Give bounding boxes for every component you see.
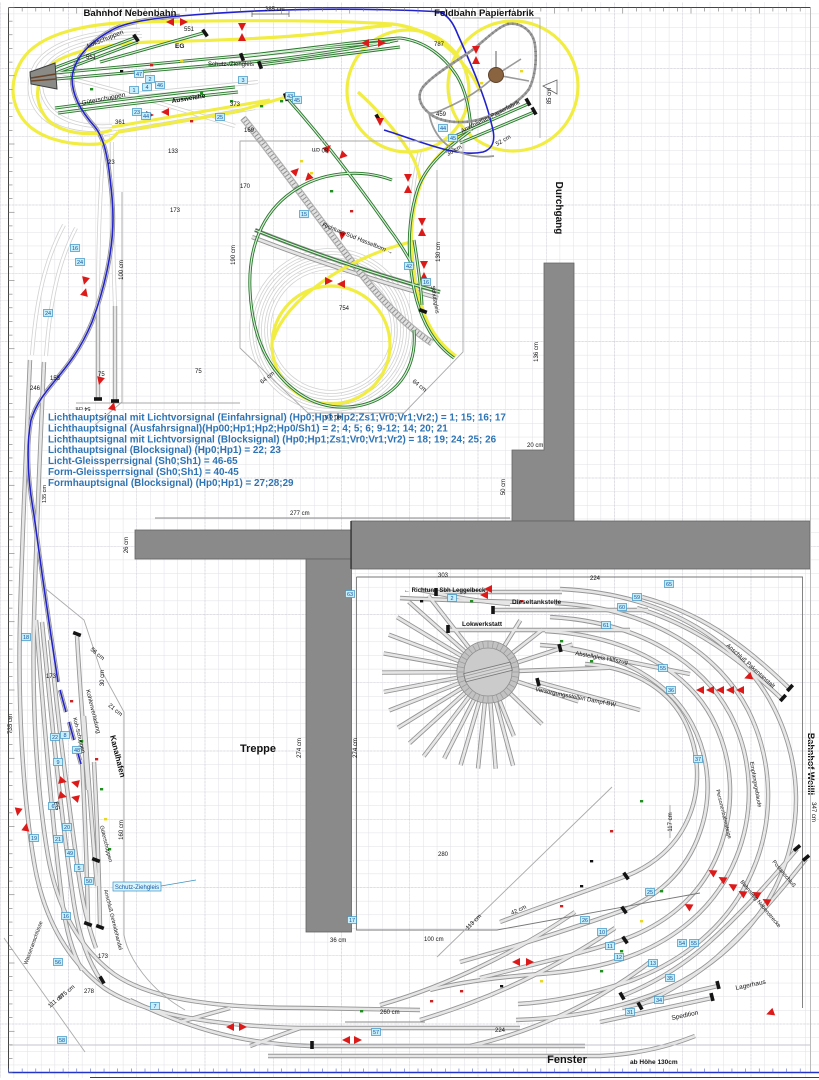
svg-text:10: 10: [599, 930, 605, 936]
svg-text:45: 45: [294, 98, 300, 104]
svg-text:42: 42: [406, 264, 412, 270]
svg-text:21: 21: [55, 837, 61, 843]
svg-text:23: 23: [134, 110, 140, 116]
svg-text:12: 12: [616, 955, 622, 961]
svg-text:Bahnhof Nebenbahn: Bahnhof Nebenbahn: [84, 8, 177, 19]
svg-text:85 cm: 85 cm: [547, 88, 553, 104]
svg-text:36 cm: 36 cm: [330, 938, 346, 944]
svg-text:75: 75: [195, 369, 202, 375]
svg-text:Lichthauptsignal (Blocksignal): Lichthauptsignal (Blocksignal) (Hp0;Hp1)…: [48, 445, 281, 456]
svg-text:280: 280: [438, 852, 449, 858]
svg-text:373: 373: [230, 102, 241, 108]
svg-text:Lichthauptsignal (Ausfahrsigna: Lichthauptsignal (Ausfahrsignal)(Hp00;Hp…: [48, 423, 448, 434]
svg-text:Dieseltankstelle: Dieseltankstelle: [512, 599, 562, 606]
svg-text:Lichthauptsignal mit Lichtvors: Lichthauptsignal mit Lichtvorsignal (Blo…: [48, 434, 497, 445]
svg-text:190 cm: 190 cm: [231, 245, 237, 265]
svg-text:Schutz-/Ziehgleis: Schutz-/Ziehgleis: [208, 62, 254, 68]
svg-text:← Richtung Sbh Leggelbeck: ← Richtung Sbh Leggelbeck: [404, 588, 486, 594]
svg-text:22: 22: [52, 735, 58, 741]
svg-text:23: 23: [108, 160, 115, 166]
svg-text:173: 173: [170, 208, 181, 214]
svg-text:754: 754: [339, 306, 350, 312]
svg-text:50 cm: 50 cm: [501, 479, 507, 495]
svg-text:19: 19: [31, 836, 37, 842]
svg-text:Licht-Gleissperrsignal (Sh0;Sh: Licht-Gleissperrsignal (Sh0;Sh1) = 46-65: [48, 456, 238, 467]
svg-text:55: 55: [660, 666, 666, 672]
svg-text:246: 246: [30, 386, 41, 392]
svg-text:50: 50: [86, 879, 92, 885]
svg-text:54: 54: [679, 941, 685, 947]
svg-text:Treppe: Treppe: [240, 743, 276, 755]
svg-text:44: 44: [440, 126, 446, 132]
svg-text:170: 170: [240, 184, 251, 190]
svg-text:20 cm: 20 cm: [527, 443, 543, 449]
svg-text:75: 75: [98, 372, 105, 378]
svg-text:26 cm: 26 cm: [124, 537, 130, 553]
svg-text:459: 459: [436, 112, 447, 118]
svg-text:16: 16: [423, 280, 429, 286]
svg-text:30 cm: 30 cm: [100, 670, 106, 686]
svg-text:24: 24: [77, 260, 83, 266]
svg-text:7: 7: [153, 1004, 156, 1010]
svg-text:100 cm: 100 cm: [119, 260, 125, 280]
svg-text:57: 57: [373, 1030, 379, 1036]
svg-text:20: 20: [64, 825, 70, 831]
svg-text:169: 169: [244, 128, 255, 134]
svg-text:4: 4: [145, 85, 148, 91]
svg-text:54 cm: 54 cm: [75, 405, 90, 411]
svg-text:361: 361: [115, 120, 126, 126]
svg-text:551: 551: [86, 55, 97, 61]
svg-text:35: 35: [667, 976, 673, 982]
svg-text:16: 16: [63, 914, 69, 920]
svg-text:Lichthauptsignal mit Lichtvors: Lichthauptsignal mit Lichtvorsignal (Ein…: [48, 413, 506, 424]
svg-text:2: 2: [148, 77, 151, 83]
svg-text:49: 49: [67, 851, 73, 857]
svg-text:80 cm: 80 cm: [325, 413, 341, 419]
svg-text:80 cm: 80 cm: [312, 146, 328, 152]
svg-text:59: 59: [634, 595, 640, 601]
svg-text:Feldbahn Papierfabrik: Feldbahn Papierfabrik: [434, 8, 534, 19]
svg-text:3: 3: [241, 78, 244, 84]
svg-text:2: 2: [450, 596, 453, 602]
svg-text:EG: EG: [175, 43, 184, 50]
svg-text:16: 16: [72, 246, 78, 252]
svg-text:Durchgang: Durchgang: [553, 182, 564, 235]
svg-text:133: 133: [168, 149, 179, 155]
svg-text:173: 173: [46, 674, 57, 680]
svg-text:56: 56: [55, 960, 61, 966]
svg-text:46: 46: [157, 83, 163, 89]
svg-text:58: 58: [59, 1038, 65, 1044]
svg-text:117 cm: 117 cm: [668, 812, 674, 831]
svg-text:160 cm: 160 cm: [119, 820, 125, 840]
svg-text:8: 8: [63, 733, 66, 739]
svg-text:44: 44: [143, 114, 149, 120]
svg-text:136 cm: 136 cm: [534, 342, 540, 362]
svg-text:43: 43: [287, 94, 293, 100]
svg-text:31: 31: [627, 1010, 633, 1016]
svg-text:173: 173: [98, 954, 109, 960]
svg-text:130 cm: 130 cm: [436, 242, 442, 262]
svg-text:55: 55: [691, 941, 697, 947]
svg-text:Formhauptsignal (Blocksignal): Formhauptsignal (Blocksignal) (Hp0;Hp1) …: [48, 478, 294, 489]
svg-text:24: 24: [45, 311, 51, 317]
svg-text:25: 25: [647, 890, 653, 896]
svg-text:17: 17: [349, 918, 355, 924]
svg-text:Lokwerkstatt: Lokwerkstatt: [462, 621, 503, 628]
svg-text:63: 63: [347, 592, 353, 598]
svg-text:61: 61: [603, 623, 609, 629]
svg-text:37: 37: [695, 757, 701, 763]
svg-text:277 cm: 277 cm: [290, 511, 310, 517]
svg-text:47: 47: [136, 72, 142, 78]
svg-text:11: 11: [607, 944, 613, 950]
svg-text:303: 303: [438, 573, 449, 579]
svg-text:787: 787: [434, 42, 445, 48]
svg-text:60: 60: [619, 605, 625, 611]
svg-text:26: 26: [582, 918, 588, 924]
svg-text:5: 5: [77, 866, 80, 872]
svg-text:153: 153: [50, 376, 61, 382]
svg-text:15: 15: [301, 212, 307, 218]
svg-text:1: 1: [132, 88, 135, 94]
svg-text:274 cm: 274 cm: [297, 738, 303, 758]
svg-text:Fenster: Fenster: [547, 1054, 587, 1066]
svg-text:135 cm: 135 cm: [42, 485, 48, 503]
svg-text:278: 278: [84, 989, 95, 995]
svg-text:224: 224: [495, 1028, 506, 1034]
svg-text:Schutz-Ziehgleis: Schutz-Ziehgleis: [115, 885, 159, 891]
svg-text:ab Höhe 130cm: ab Höhe 130cm: [630, 1059, 678, 1066]
svg-text:Form-Gleissperrsignal (Sh0;Sh1: Form-Gleissperrsignal (Sh0;Sh1) = 40-45: [48, 467, 239, 478]
svg-text:65: 65: [666, 582, 672, 588]
svg-text:13: 13: [650, 961, 656, 967]
svg-text:36: 36: [668, 688, 674, 694]
svg-text:9: 9: [56, 760, 59, 766]
svg-text:25: 25: [217, 115, 223, 121]
svg-text:260 cm: 260 cm: [380, 1010, 400, 1016]
svg-text:224: 224: [590, 576, 601, 582]
svg-text:274 cm: 274 cm: [353, 738, 359, 758]
svg-text:551: 551: [184, 27, 195, 33]
svg-text:34: 34: [656, 998, 662, 1004]
svg-text:100 cm: 100 cm: [424, 937, 444, 943]
svg-text:18: 18: [23, 635, 29, 641]
svg-text:45: 45: [450, 136, 456, 142]
